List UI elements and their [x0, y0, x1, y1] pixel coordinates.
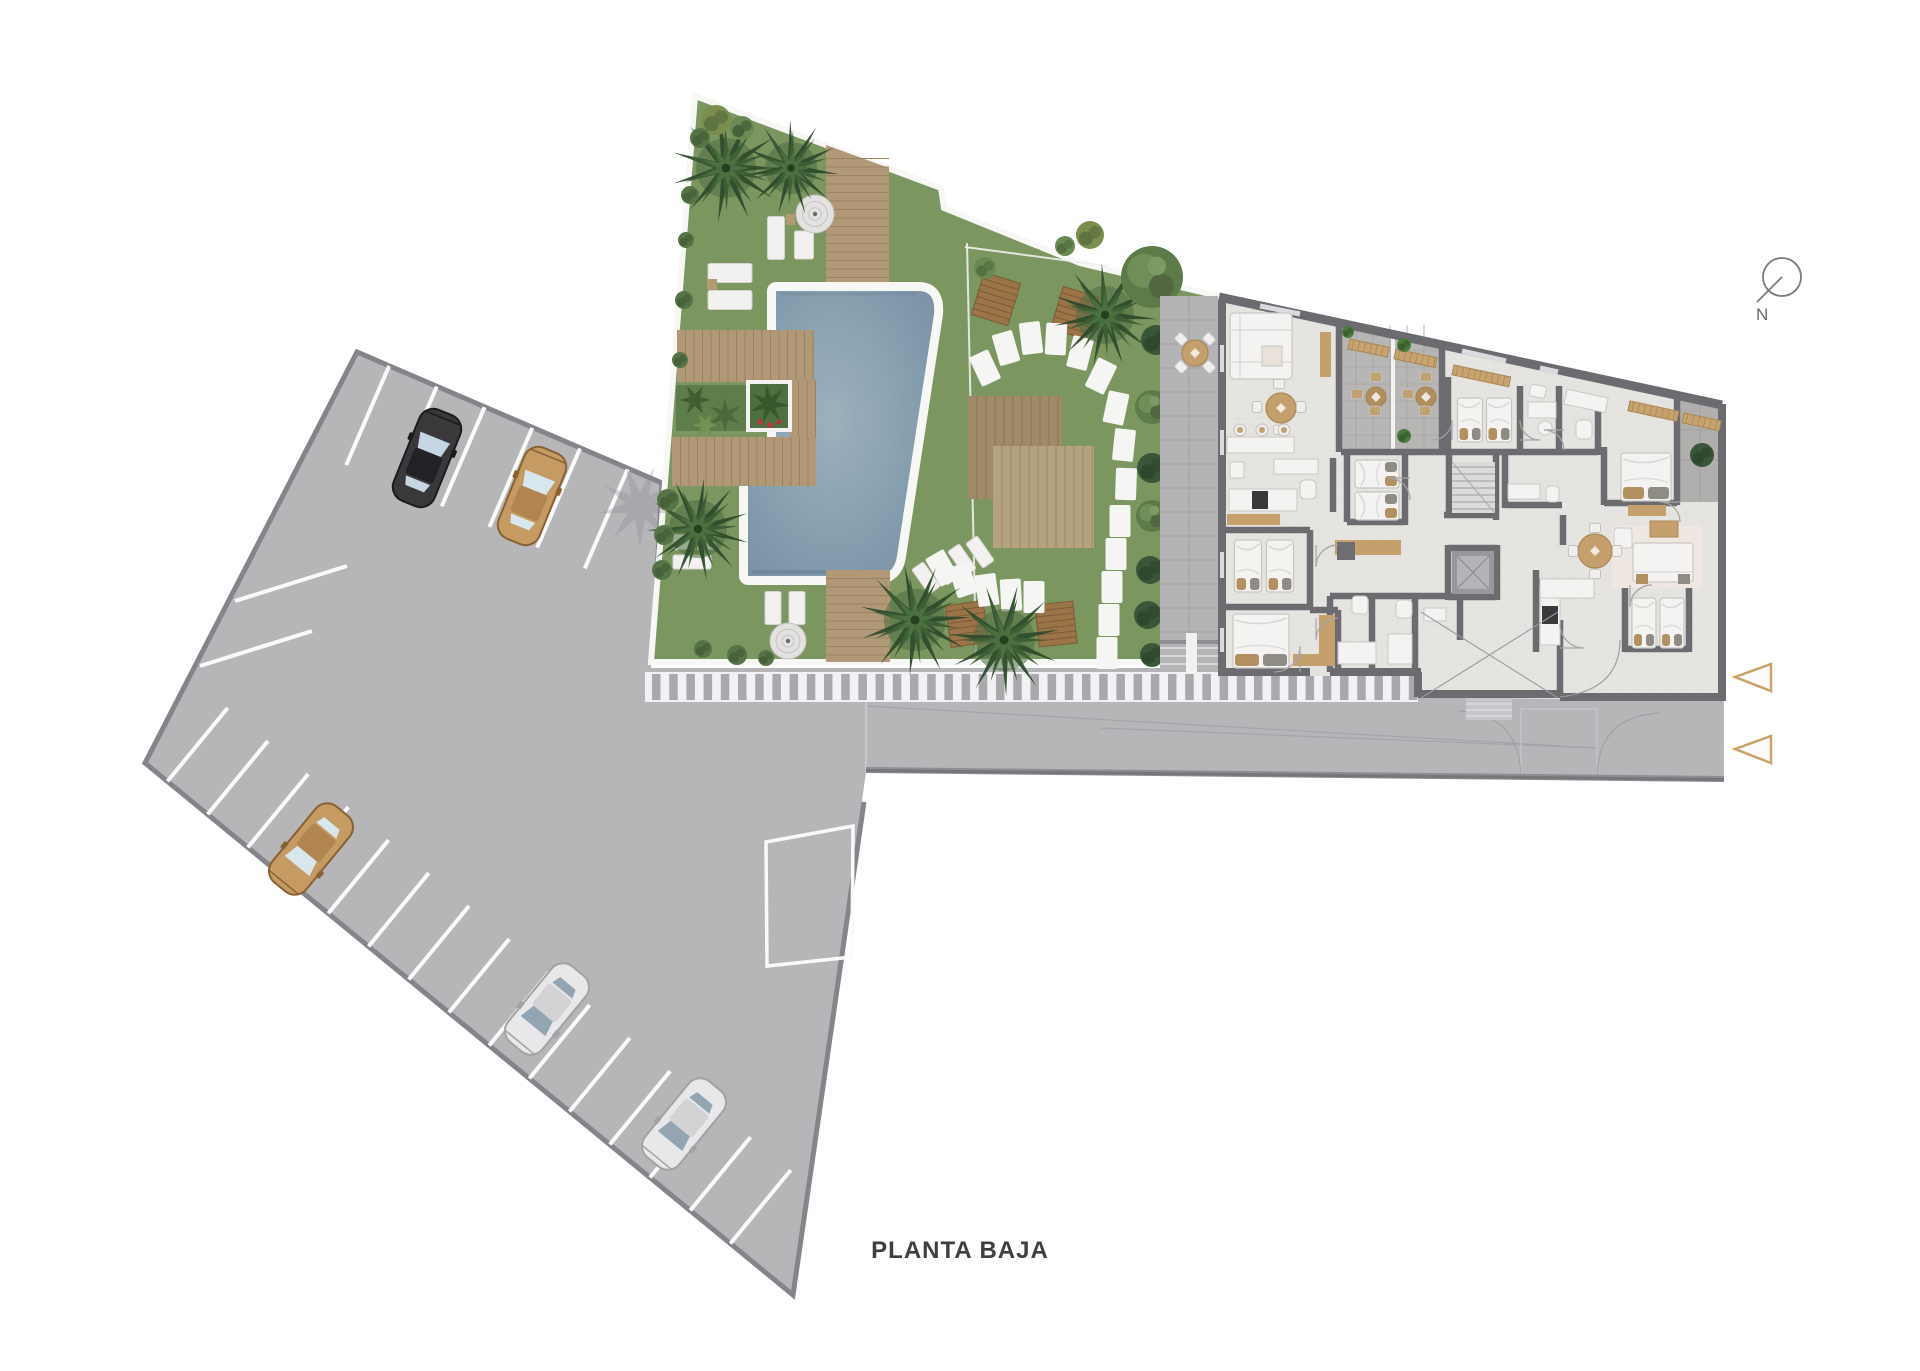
svg-text:PLANTA BAJA: PLANTA BAJA	[871, 1237, 1049, 1264]
svg-text:N: N	[1756, 305, 1768, 324]
